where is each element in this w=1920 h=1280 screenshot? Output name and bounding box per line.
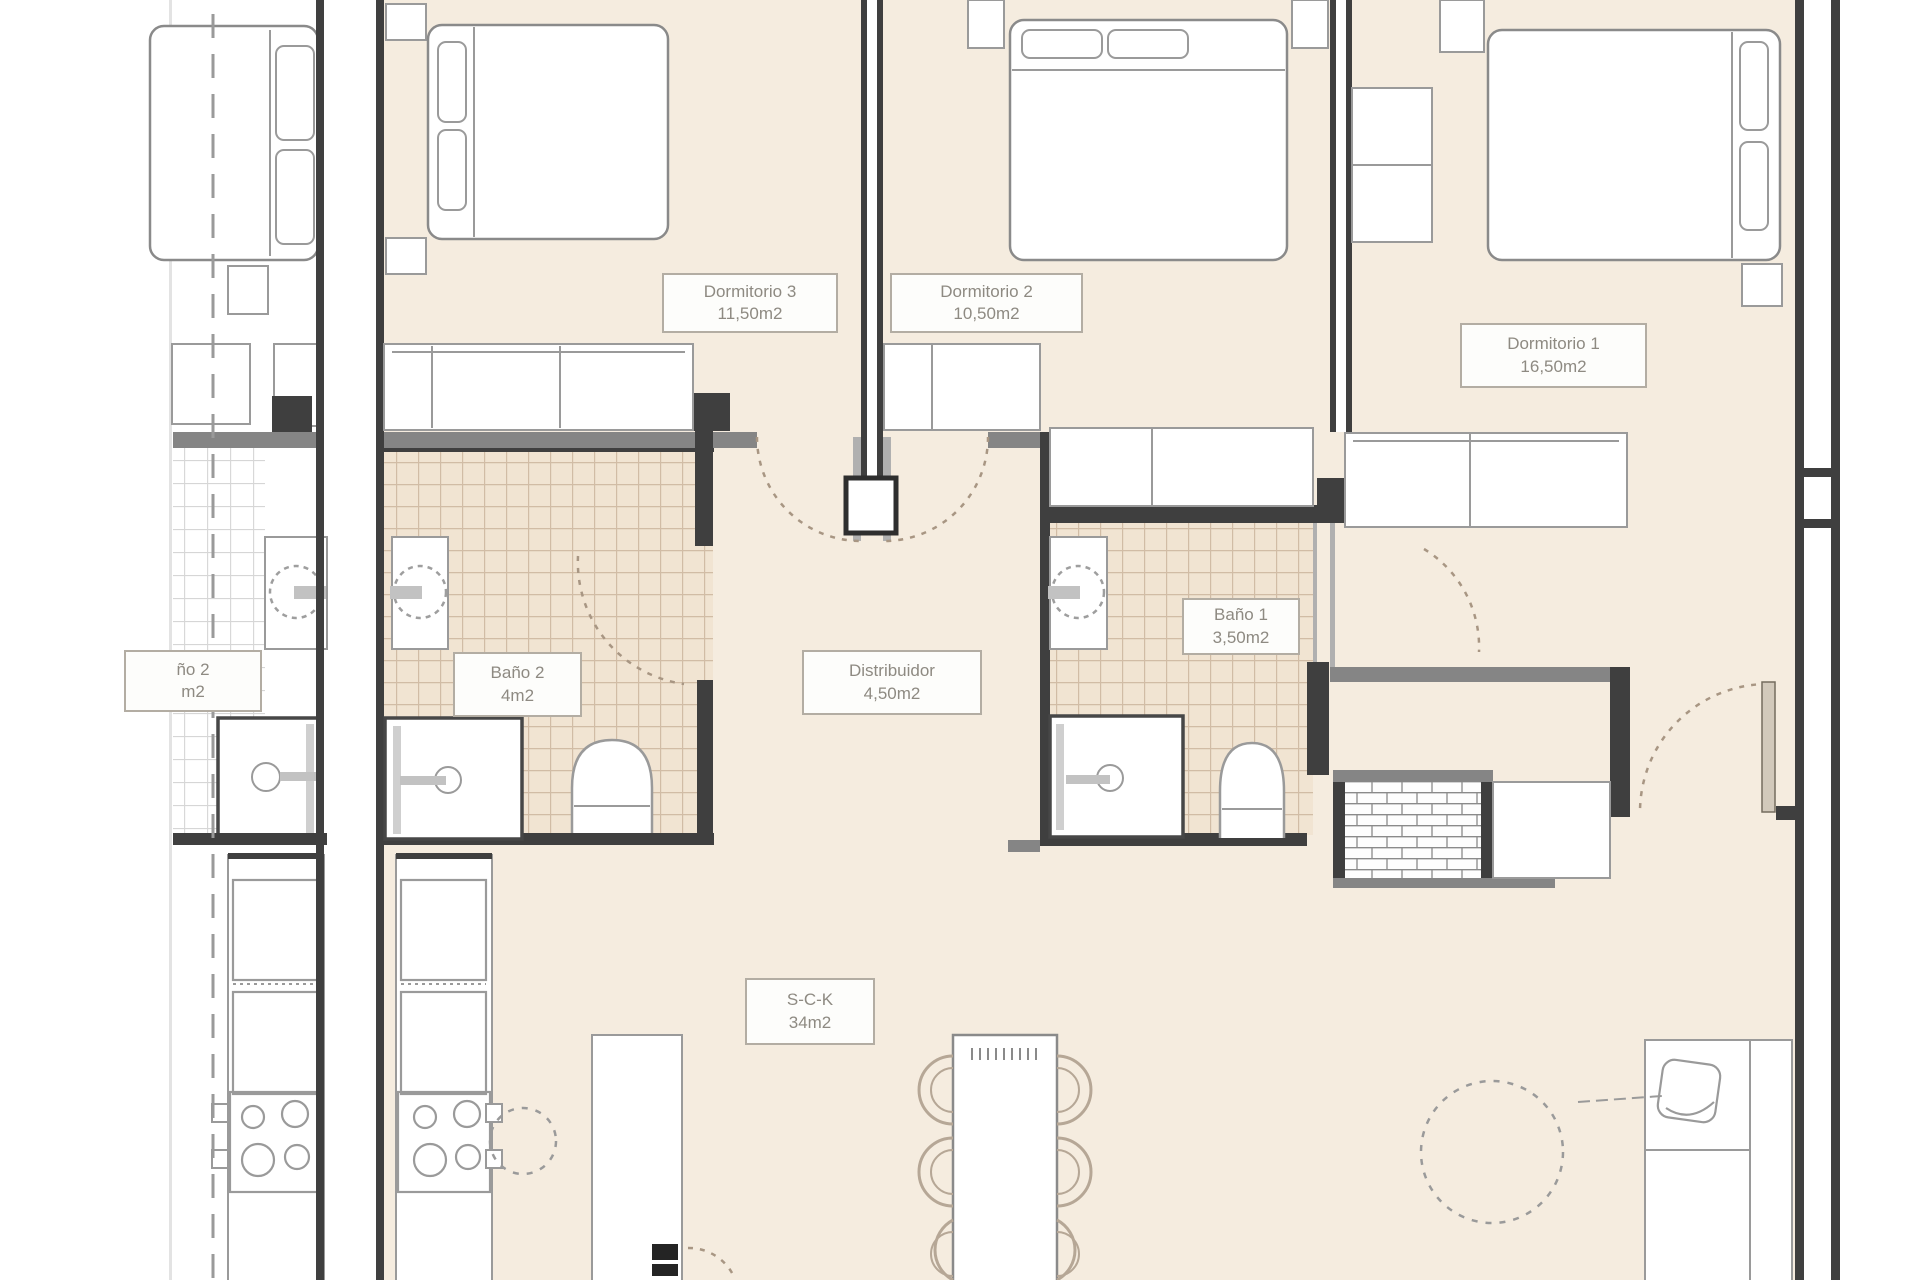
neighbor-nightstand xyxy=(228,266,268,314)
column-distribuidor xyxy=(846,478,896,533)
room-area: 4m2 xyxy=(501,685,534,707)
nightstand xyxy=(1440,0,1484,52)
pillow xyxy=(438,42,466,122)
room-area: 10,50m2 xyxy=(953,303,1019,325)
dining-table xyxy=(953,1035,1057,1280)
room-area: 16,50m2 xyxy=(1520,356,1586,378)
pillow xyxy=(1740,42,1768,130)
shower-bano2 xyxy=(385,718,522,839)
room-name: Dormitorio 1 xyxy=(1507,333,1600,355)
room-name: Baño 2 xyxy=(491,662,545,684)
nightstand xyxy=(1742,264,1782,306)
room-name: S-C-K xyxy=(787,989,833,1011)
room-label-distribuidor: Distribuidor 4,50m2 xyxy=(802,650,982,715)
pillow xyxy=(438,130,466,210)
room-area: m2 xyxy=(181,681,205,703)
room-label-bano2: Baño 2 4m2 xyxy=(453,652,582,717)
nightstand xyxy=(1292,0,1328,48)
kitchen-counter xyxy=(396,853,492,1280)
bed-dormitorio2 xyxy=(968,0,1328,260)
room-name: Dormitorio 3 xyxy=(704,281,797,303)
toilet-bano2 xyxy=(572,740,652,833)
floor-plan: Dormitorio 3 11,50m2 Dormitorio 2 10,50m… xyxy=(0,0,1920,1280)
party-wall-inner xyxy=(376,0,384,1280)
wardrobe-dormitorio1 xyxy=(1345,433,1627,527)
nightstand xyxy=(386,238,426,274)
structural-column xyxy=(272,396,312,432)
room-name: Dormitorio 2 xyxy=(940,281,1033,303)
vanity-bano2 xyxy=(390,537,448,649)
neighbor-shower xyxy=(218,718,320,838)
room-label-sck: S-C-K 34m2 xyxy=(745,978,875,1045)
room-label-dormitorio2: Dormitorio 2 10,50m2 xyxy=(890,273,1083,333)
room-name: ño 2 xyxy=(176,659,209,681)
room-label-dormitorio3: Dormitorio 3 11,50m2 xyxy=(662,273,838,333)
door-leaf-dormitorio1 xyxy=(1762,682,1775,812)
room-area: 34m2 xyxy=(789,1012,832,1034)
room-label-neighbor-bano-partial: ño 2 m2 xyxy=(124,650,262,712)
floor-plan-drawing xyxy=(0,0,1920,1280)
kitchen-island xyxy=(592,1035,682,1280)
vanity-bano1 xyxy=(1048,537,1107,649)
room-label-dormitorio1: Dormitorio 1 16,50m2 xyxy=(1460,323,1647,388)
room-area: 11,50m2 xyxy=(718,303,783,325)
shower-bano1 xyxy=(1050,716,1183,837)
room-name: Baño 1 xyxy=(1214,604,1268,626)
neighbor-kitchen-counter xyxy=(228,853,324,1280)
room-name: Distribuidor xyxy=(849,660,935,682)
entry-closet xyxy=(1493,782,1610,878)
wardrobe-dormitorio3 xyxy=(384,344,693,430)
pillow xyxy=(1108,30,1188,58)
nightstand xyxy=(968,0,1004,48)
party-wall-outer xyxy=(316,0,324,1280)
room-area: 3,50m2 xyxy=(1213,627,1270,649)
toilet-bano1 xyxy=(1220,743,1284,838)
nightstand xyxy=(386,4,426,40)
pillow xyxy=(1740,142,1768,230)
room-area: 4,50m2 xyxy=(864,683,921,705)
pillow xyxy=(1022,30,1102,58)
room-label-bano1: Baño 1 3,50m2 xyxy=(1182,598,1300,655)
neighbor-bed xyxy=(150,26,318,260)
